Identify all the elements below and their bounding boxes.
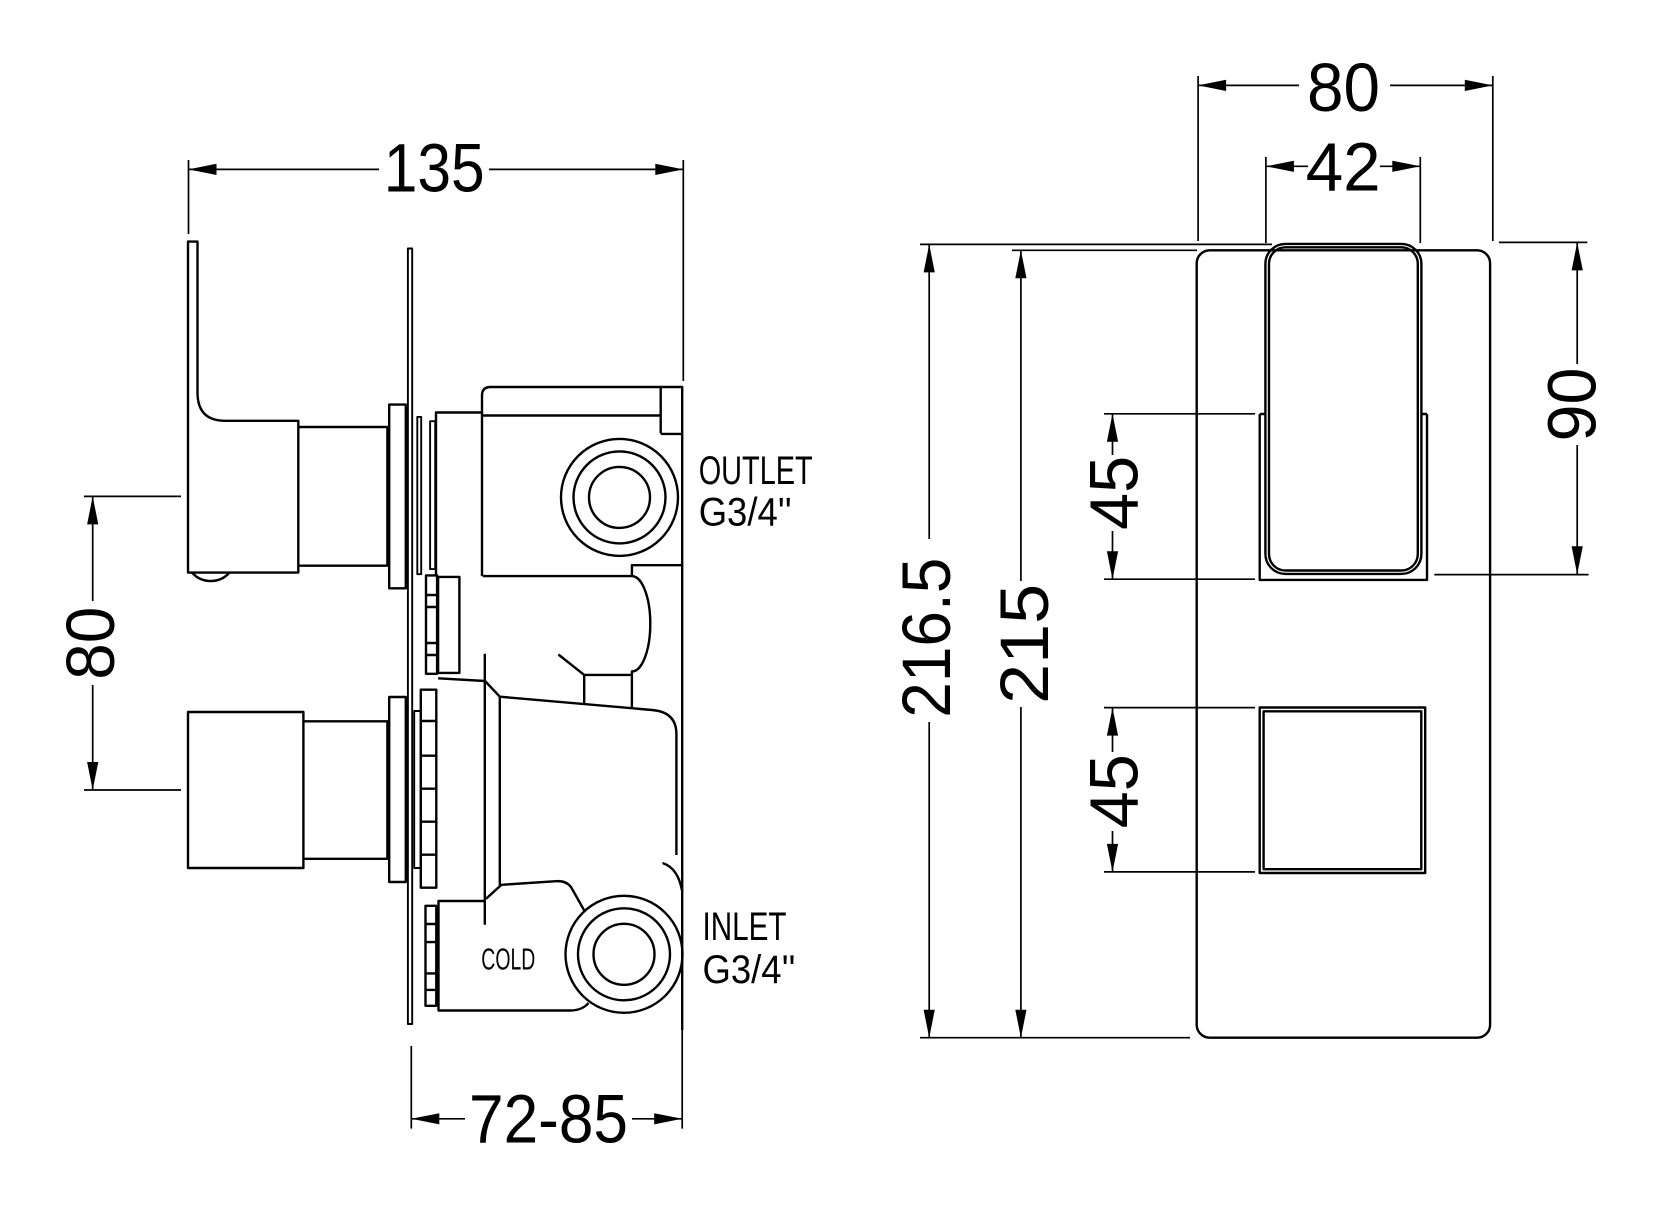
svg-text:G3/4'': G3/4''	[699, 491, 792, 535]
svg-text:G3/4'': G3/4''	[703, 948, 796, 992]
svg-text:45: 45	[1075, 754, 1152, 828]
svg-text:OUTLET: OUTLET	[699, 449, 813, 493]
svg-text:80: 80	[52, 607, 129, 680]
svg-text:45: 45	[1075, 456, 1152, 530]
svg-text:COLD: COLD	[481, 942, 535, 977]
svg-text:42: 42	[1306, 129, 1381, 206]
svg-text:215: 215	[986, 584, 1063, 704]
svg-text:135: 135	[384, 130, 485, 207]
svg-text:90: 90	[1533, 368, 1610, 442]
svg-text:80: 80	[1307, 49, 1380, 126]
svg-text:INLET: INLET	[703, 905, 787, 949]
svg-text:72-85: 72-85	[469, 1081, 628, 1158]
svg-text:216.5: 216.5	[888, 558, 965, 718]
